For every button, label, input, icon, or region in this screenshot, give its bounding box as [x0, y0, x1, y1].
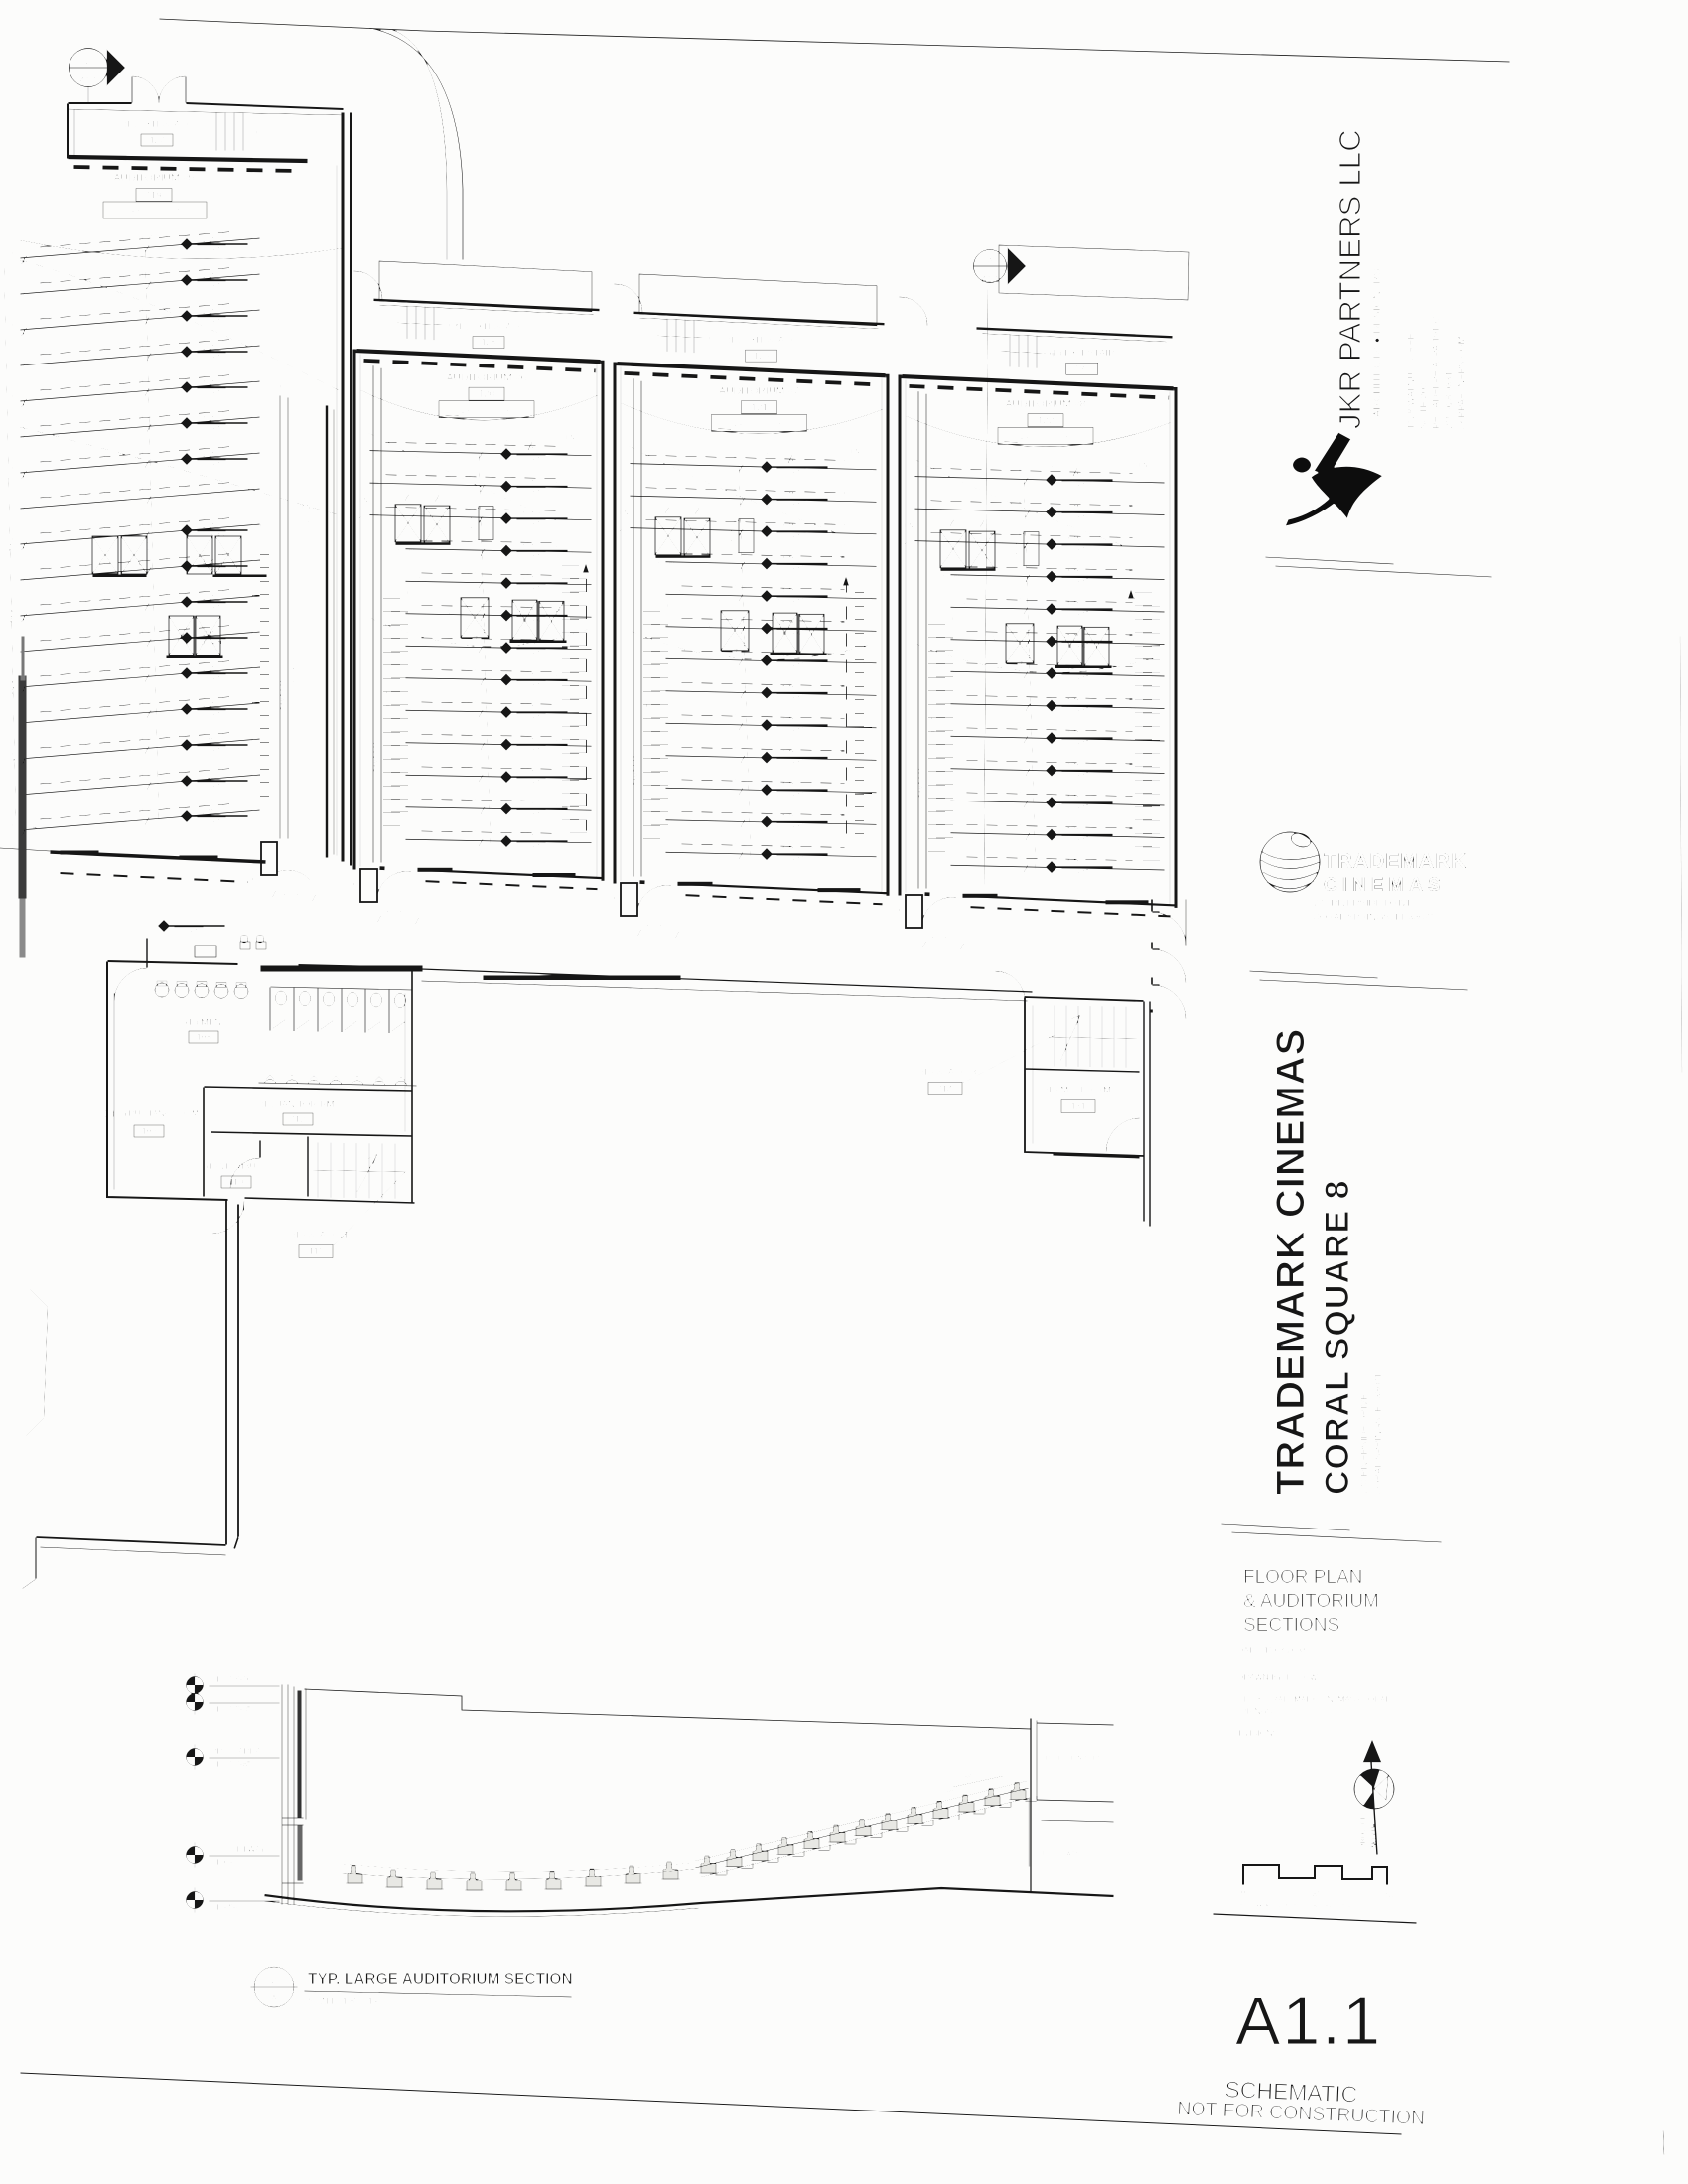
svg-text:T.O. SLAB: T.O. SLAB	[518, 457, 544, 463]
svg-text:10: 10	[1129, 633, 1135, 640]
svg-text:SCALE: 1/8" = 1'-0": SCALE: 1/8" = 1'-0"	[308, 1996, 385, 2006]
svg-text:5'-0": 5'-0"	[614, 897, 620, 909]
svg-text:(E) JANITOR RM: (E) JANITOR RM	[261, 1099, 334, 1110]
svg-text:-1'-4": -1'-4"	[199, 810, 212, 816]
svg-text:109: 109	[141, 1126, 156, 1136]
svg-text:& AUDITORIUM: & AUDITORIUM	[1243, 1591, 1379, 1612]
svg-text:CORAL SQUARE 8: CORAL SQUARE 8	[1319, 1179, 1356, 1495]
svg-text:T.O. SLAB: T.O. SLAB	[778, 599, 804, 605]
svg-text:+0'-2": +0'-2"	[199, 703, 213, 709]
svg-text:10: 10	[841, 555, 847, 562]
svg-text:T.O. SLAB: T.O. SLAB	[199, 283, 224, 289]
svg-text:AUDITORIUM #7: AUDITORIUM #7	[719, 385, 799, 397]
svg-text:T.O. SLAB: T.O. SLAB	[199, 712, 224, 718]
svg-text:CORAL SPRINGS, FL 33071: CORAL SPRINGS, FL 33071	[1373, 1373, 1384, 1495]
svg-text:13'-9": 13'-9"	[397, 549, 415, 556]
svg-text:8 SEATS + 5 H.C. SPACES: 8 SEATS + 5 H.C. SPACES	[727, 423, 793, 429]
svg-text:T.O. SLAB: T.O. SLAB	[518, 844, 544, 850]
svg-text:+3'-8": +3'-8"	[778, 590, 793, 596]
svg-text:110: 110	[229, 1177, 243, 1187]
svg-text:+6'-2": +6'-2"	[199, 274, 213, 280]
svg-text:121: 121	[751, 403, 768, 414]
svg-text:T.O. SLAB: T.O. SLAB	[199, 784, 224, 790]
svg-text:3'-0": 3'-0"	[357, 515, 371, 522]
svg-text:112: 112	[291, 1114, 305, 1124]
svg-text:+2'-8": +2'-8"	[199, 524, 213, 530]
svg-text:SPRINGS\: SPRINGS\	[1236, 1707, 1275, 1716]
svg-text:TRADEMARK: TRADEMARK	[1324, 850, 1467, 873]
svg-text:10: 10	[556, 799, 562, 805]
svg-text:+1'-2": +1'-2"	[518, 738, 533, 744]
svg-text:A1.1: A1.1	[1235, 1983, 1382, 2059]
svg-text:PHILADELPHIA, PA 19107: PHILADELPHIA, PA 19107	[1431, 316, 1442, 429]
svg-text:T.O. SLAB: T.O. SLAB	[518, 682, 544, 688]
svg-text:+5'-8": +5'-8"	[518, 448, 533, 454]
svg-text:+0'-5": +0'-5"	[1063, 861, 1078, 867]
svg-text:T.O. SLAB: T.O. SLAB	[1063, 837, 1089, 843]
svg-text:+0'-11": +0'-11"	[518, 802, 536, 808]
svg-text:JKRPARTNERS.COM: JKRPARTNERS.COM	[1456, 336, 1467, 429]
svg-text:RAMP 1:12: RAMP 1:12	[919, 767, 925, 798]
svg-text:T.O. SLAB: T.O. SLAB	[778, 760, 804, 766]
svg-text:T.O. SLAB: T.O. SLAB	[199, 676, 224, 682]
svg-text:UP: UP	[407, 591, 415, 597]
svg-text:TRADEMARK CINEMAS: TRADEMARK CINEMAS	[1269, 1028, 1313, 1495]
svg-text:DN: DN	[566, 436, 575, 442]
svg-text:SUITE 200: SUITE 200	[1419, 383, 1430, 429]
svg-text:+0'-8": +0'-8"	[199, 667, 213, 673]
svg-text:FILE: K:\TRADEMARK CINEMAS -: FILE: K:\TRADEMARK CINEMAS - CORAL	[1236, 1695, 1390, 1704]
svg-text:5'-0": 5'-0"	[353, 883, 359, 895]
svg-text:3'-0": 3'-0"	[306, 519, 320, 526]
svg-text:+4'-2": +4'-2"	[1063, 570, 1078, 576]
svg-text:PROJ. AREA: PROJ. AREA	[211, 1746, 261, 1756]
svg-text:T.O. SLAB: T.O. SLAB	[518, 521, 544, 527]
svg-text:NORTH: NORTH	[1371, 1823, 1378, 1848]
svg-text:DN: DN	[620, 511, 629, 517]
svg-text:5'-0": 5'-0"	[899, 909, 905, 921]
svg-text:-0'-10": -0'-10"	[199, 775, 215, 781]
svg-text:+4'-8": +4'-8"	[518, 512, 533, 518]
svg-text:T.O. SLAB: T.O. SLAB	[199, 355, 224, 361]
svg-text:+1'-8": +1'-8"	[1063, 732, 1078, 738]
svg-text:T.O. SLAB: T.O. SLAB	[518, 715, 544, 721]
svg-text:+3'-8": +3'-8"	[199, 453, 213, 459]
svg-text:3'-0": 3'-0"	[1050, 464, 1063, 471]
svg-text:T.O. SLAB: T.O. SLAB	[1063, 483, 1089, 489]
svg-text:10: 10	[556, 734, 562, 741]
svg-text:3'-0": 3'-0"	[149, 233, 163, 240]
svg-text:DN: DN	[1139, 463, 1148, 469]
svg-text:+4'-2": +4'-2"	[518, 544, 533, 550]
svg-text:T.O. SLAB: T.O. SLAB	[199, 462, 224, 468]
svg-text:4'-3": 4'-3"	[1015, 542, 1022, 556]
svg-text:DATE: 11.03.2008: DATE: 11.03.2008	[1237, 1645, 1306, 1655]
svg-text:4'-3": 4'-3"	[470, 516, 477, 530]
svg-text:+0'-11": +0'-11"	[778, 815, 796, 821]
svg-text:T.O. SLAB: T.O. SLAB	[1063, 676, 1089, 682]
svg-text:3'-0": 3'-0"	[903, 541, 916, 548]
svg-text:4'-3": 4'-3"	[730, 529, 737, 543]
svg-text:T.O. SLAB: T.O. SLAB	[778, 695, 804, 701]
svg-text:T.O. SLAB: T.O. SLAB	[199, 247, 224, 253]
svg-text:T.O. SLAB: T.O. SLAB	[199, 605, 224, 611]
svg-text:+2'-2": +2'-2"	[778, 686, 793, 692]
svg-text:A: A	[271, 1993, 277, 2003]
svg-text:T.O. SLAB: T.O. SLAB	[176, 929, 202, 935]
svg-text:+1'-8": +1'-8"	[778, 719, 793, 725]
svg-text:0: 0	[1241, 1888, 1246, 1897]
svg-text:+4'-8": +4'-8"	[778, 525, 793, 531]
svg-text:+5'-8": +5'-8"	[1063, 474, 1078, 480]
svg-text:EL -4'-6": EL -4'-6"	[211, 1902, 243, 1912]
svg-text:A1.1: A1.1	[79, 75, 97, 85]
svg-text:16': 16'	[1384, 1892, 1395, 1901]
svg-text:JKR PARTNERS LLC: JKR PARTNERS LLC	[1333, 129, 1367, 429]
svg-text:EL +18'-10": EL +18'-10"	[211, 1674, 255, 1684]
svg-text:+3'-8": +3'-8"	[518, 577, 533, 583]
svg-text:(E) MEN: (E) MEN	[186, 1017, 222, 1028]
svg-text:UP: UP	[280, 385, 288, 391]
svg-text:4'-10": 4'-10"	[930, 936, 947, 943]
svg-text:T.O. SLAB: T.O. SLAB	[518, 651, 544, 656]
svg-text:UP: UP	[667, 604, 675, 610]
svg-text:10'-0": 10'-0"	[176, 920, 191, 926]
svg-text:DN: DN	[359, 499, 368, 505]
svg-text:+1'-8": +1'-8"	[518, 706, 533, 712]
svg-text:T.O. SLAB: T.O. SLAB	[778, 502, 804, 508]
svg-text:10: 10	[841, 491, 847, 498]
svg-text:T.O. SLAB: T.O. SLAB	[778, 793, 804, 799]
svg-text:2: 2	[271, 1975, 276, 1986]
svg-text:+0'-8": +0'-8"	[518, 771, 533, 777]
svg-text:SECTIONS: SECTIONS	[1243, 1615, 1339, 1636]
svg-text:(E) SPILLWAY: (E) SPILLWAY	[1041, 1851, 1079, 1857]
svg-text:131: 131	[1070, 1101, 1085, 1111]
svg-text:108: 108	[196, 1032, 211, 1042]
svg-text:10: 10	[556, 476, 562, 483]
svg-text:+0'-8": +0'-8"	[778, 784, 793, 790]
svg-text:+5'-2": +5'-2"	[778, 493, 793, 499]
svg-text:T.O. SLAB: T.O. SLAB	[518, 553, 544, 559]
svg-text:4'-10": 4'-10"	[282, 893, 299, 900]
svg-text:18'-0": 18'-0"	[293, 667, 299, 682]
svg-text:4'-10": 4'-10"	[645, 924, 662, 931]
svg-text:770 RIVERSIDE DRIVE: 770 RIVERSIDE DRIVE	[1313, 898, 1413, 909]
svg-text:T.O. SLAB: T.O. SLAB	[1063, 870, 1089, 876]
svg-text:DN: DN	[302, 505, 311, 510]
svg-text:10: 10	[1129, 762, 1135, 769]
svg-text:8 SEATS + 5 H.C. SPACES: 8 SEATS + 5 H.C. SPACES	[1014, 436, 1080, 442]
svg-text:3'-0": 3'-0"	[618, 528, 632, 535]
svg-text:-0'-4": -0'-4"	[199, 739, 212, 745]
svg-text:+1'-2": +1'-2"	[778, 751, 793, 757]
svg-text:13'-9": 13'-9"	[657, 562, 675, 569]
svg-text:3'-8": 3'-8"	[417, 575, 431, 582]
svg-text:+5'-8": +5'-8"	[199, 310, 213, 316]
svg-text:(E) EXIT STAIR: (E) EXIT STAIR	[728, 335, 793, 346]
svg-text:+1'-2": +1'-2"	[1063, 764, 1078, 770]
svg-text:(E) STAIR #3: (E) STAIR #3	[921, 1067, 977, 1078]
svg-text:T.O. SLAB: T.O. SLAB	[1063, 514, 1089, 520]
svg-text:T.O. SLAB: T.O. SLAB	[199, 748, 224, 754]
svg-text:127: 127	[149, 135, 164, 145]
svg-text:T.O. SLAB: T.O. SLAB	[778, 566, 804, 572]
svg-text:PROJECT: PROJECT	[1360, 1815, 1367, 1848]
svg-text:COPYRIGHT 2008 JKR PARTNERS,: COPYRIGHT 2008 JKR PARTNERS, L.L.C. ALL …	[1225, 1903, 1365, 1908]
svg-text:3'-3": 3'-3"	[992, 635, 999, 649]
svg-text:+0'-5": +0'-5"	[778, 848, 793, 854]
svg-text:(E) SYRUP TANK ROOM: (E) SYRUP TANK ROOM	[103, 1108, 199, 1118]
svg-text:FLOOR PLAN: FLOOR PLAN	[1243, 1567, 1362, 1588]
svg-text:T.O. SLAB: T.O. SLAB	[518, 489, 544, 495]
svg-text:(E) EXIT STAIR: (E) EXIT STAIR	[456, 322, 521, 333]
svg-text:13'-9": 13'-9"	[942, 575, 960, 582]
svg-text:+5'-2": +5'-2"	[1063, 506, 1078, 511]
svg-text:114: 114	[938, 1084, 952, 1093]
svg-text:3: 3	[987, 254, 992, 264]
svg-text:EL +10'-8": EL +10'-8"	[211, 1759, 250, 1769]
svg-text:+4'-8": +4'-8"	[199, 381, 213, 387]
svg-text:8 SEATS + 5 H.C. SPACES: 8 SEATS + 5 H.C. SPACES	[455, 410, 521, 416]
svg-text:T.O. SLAB: T.O. SLAB	[1063, 708, 1089, 714]
svg-text:+4'-8": +4'-8"	[1063, 538, 1078, 544]
svg-text:111: 111	[309, 1246, 323, 1256]
svg-text:2: 2	[85, 56, 90, 66]
svg-text:T.O. SLAB: T.O. SLAB	[778, 470, 804, 476]
svg-text:+6'-8": +6'-8"	[199, 238, 213, 244]
svg-text:T.O. SLAB: T.O. SLAB	[1063, 547, 1089, 553]
svg-text:EL 0'-0": EL 0'-0"	[211, 1857, 240, 1867]
svg-text:129: 129	[754, 351, 769, 361]
svg-text:UP: UP	[260, 524, 268, 530]
svg-text:(E) VESTIBULE: (E) VESTIBULE	[207, 1161, 267, 1171]
svg-text:(E) EXIT STAIR: (E) EXIT STAIR	[124, 119, 190, 130]
svg-text:122: 122	[1038, 416, 1055, 427]
svg-text:RAMP 1:12: RAMP 1:12	[281, 679, 287, 710]
svg-text:UP: UP	[709, 337, 717, 343]
svg-text:A1.1: A1.1	[981, 274, 999, 284]
svg-text:CINEMAS: CINEMAS	[1324, 875, 1446, 896]
svg-text:T.O. SLAB: T.O. SLAB	[518, 780, 544, 786]
svg-text:5'-0": 5'-0"	[252, 878, 258, 890]
svg-text:T.O. SLAB: T.O. SLAB	[199, 426, 224, 432]
svg-text:DRAWN BY: DU, CW: DRAWN BY: DU, CW	[1237, 1673, 1318, 1682]
svg-text:+2'-2": +2'-2"	[1063, 699, 1078, 705]
svg-text:10: 10	[1129, 826, 1135, 833]
svg-text:UP: UP	[256, 131, 264, 137]
svg-text:PROJECTION AREA: PROJECTION AREA	[1041, 1755, 1102, 1762]
svg-text:10: 10	[556, 540, 562, 547]
svg-text:T.O. SLAB: T.O. SLAB	[1063, 612, 1089, 618]
svg-text:T.O. SLAB: T.O. SLAB	[199, 390, 224, 396]
svg-text:3'-0": 3'-0"	[504, 438, 518, 445]
svg-text:128: 128	[481, 338, 495, 348]
svg-text:10: 10	[1129, 504, 1135, 510]
svg-text:3'-3": 3'-3"	[707, 622, 714, 636]
svg-text:T.O. SLAB: T.O. SLAB	[518, 586, 544, 592]
svg-text:T.O. SLAB: T.O. SLAB	[778, 534, 804, 540]
svg-text:(E) SPILLWAY: (E) SPILLWAY	[211, 1844, 266, 1854]
svg-text:1128 WALNUT STREET: 1128 WALNUT STREET	[1406, 327, 1417, 429]
svg-text:+3'-8": +3'-8"	[1063, 603, 1078, 609]
svg-text:130: 130	[1074, 364, 1089, 373]
svg-text:+5'-2": +5'-2"	[199, 346, 213, 352]
svg-text:T.O. SLAB: T.O. SLAB	[778, 857, 804, 863]
svg-text:3'-8": 3'-8"	[962, 601, 976, 608]
svg-text:TYP. LARGE AUDITORIUM SECTION: TYP. LARGE AUDITORIUM SECTION	[308, 1971, 573, 1988]
svg-text:CORAL SPRINGS, FL 33071: CORAL SPRINGS, FL 33071	[1313, 912, 1435, 923]
svg-text:T.O. SLAB: T.O. SLAB	[1063, 805, 1089, 811]
svg-text:10: 10	[1129, 697, 1135, 704]
svg-text:DN: DN	[905, 524, 914, 530]
svg-text:REVISIONS: REVISIONS	[1232, 1728, 1279, 1738]
svg-text:215.928.9331: 215.928.9331	[1444, 371, 1455, 429]
svg-text:T.O. SLAB: T.O. SLAB	[1063, 579, 1089, 585]
svg-text:RAMP 1:12: RAMP 1:12	[374, 741, 380, 772]
svg-text:(E) METER RM: (E) METER RM	[1046, 1085, 1111, 1095]
svg-text:276 SEATS + 5 H.C. SPACES: 276 SEATS + 5 H.C. SPACES	[119, 209, 192, 215]
svg-text:+5'-2": +5'-2"	[518, 480, 533, 486]
svg-text:119: 119	[146, 191, 162, 202]
svg-text:+5'-8": +5'-8"	[778, 461, 793, 467]
svg-text:AUDITORIUM #6: AUDITORIUM #6	[447, 372, 527, 384]
svg-text:120: 120	[479, 389, 495, 400]
svg-text:T.O. SLAB: T.O. SLAB	[778, 663, 804, 669]
svg-text:+0'-8": +0'-8"	[1063, 797, 1078, 802]
svg-text:ARCHITECTS ● DESIGNERS: ARCHITECTS ● DESIGNERS	[1371, 268, 1383, 417]
svg-text:+2'-2": +2'-2"	[518, 673, 533, 679]
svg-text:RAMP 1:12: RAMP 1:12	[634, 755, 640, 786]
svg-text:T.O. SLAB: T.O. SLAB	[1063, 773, 1089, 779]
svg-text:+4'-2": +4'-2"	[199, 417, 213, 423]
svg-text:4'-10": 4'-10"	[385, 910, 402, 917]
svg-text:3'-3": 3'-3"	[447, 609, 454, 623]
svg-text:(E) EXIT STAIR: (E) EXIT STAIR	[1050, 348, 1115, 359]
svg-text:T.O. SLAB: T.O. SLAB	[199, 819, 224, 825]
svg-text:18'-3": 18'-3"	[146, 539, 153, 556]
svg-text:T.O. SLAB: T.O. SLAB	[518, 747, 544, 753]
svg-text:EL +17'-0": EL +17'-0"	[211, 1704, 250, 1714]
svg-text:10: 10	[1129, 568, 1135, 575]
svg-text:T.O. SLAB: T.O. SLAB	[199, 319, 224, 325]
svg-text:+0'-11": +0'-11"	[1063, 828, 1081, 834]
svg-text:T.O. SLAB: T.O. SLAB	[778, 824, 804, 830]
svg-text:3'-0": 3'-0"	[765, 451, 778, 458]
svg-text:3'-8": 3'-8"	[677, 588, 691, 595]
svg-text:8': 8'	[1313, 1890, 1319, 1899]
svg-text:DN: DN	[851, 450, 860, 456]
svg-text:AUDITORIUM #5: AUDITORIUM #5	[114, 172, 195, 184]
svg-text:+4'-2": +4'-2"	[778, 557, 793, 563]
svg-text:T.O. SLAB: T.O. SLAB	[1063, 741, 1089, 747]
svg-text:T.O. SLAB: T.O. SLAB	[778, 728, 804, 734]
svg-text:+0'-5": +0'-5"	[518, 835, 533, 841]
svg-text:AUDITORIUM #8: AUDITORIUM #8	[1006, 398, 1086, 410]
svg-text:UP: UP	[952, 617, 960, 623]
svg-text:770 RIVERSIDE DRIVE: 770 RIVERSIDE DRIVE	[1359, 1394, 1370, 1495]
svg-text:+1'-8": +1'-8"	[199, 596, 213, 602]
svg-text:T.O. SLAB: T.O. SLAB	[518, 811, 544, 817]
svg-text:10: 10	[556, 669, 562, 676]
